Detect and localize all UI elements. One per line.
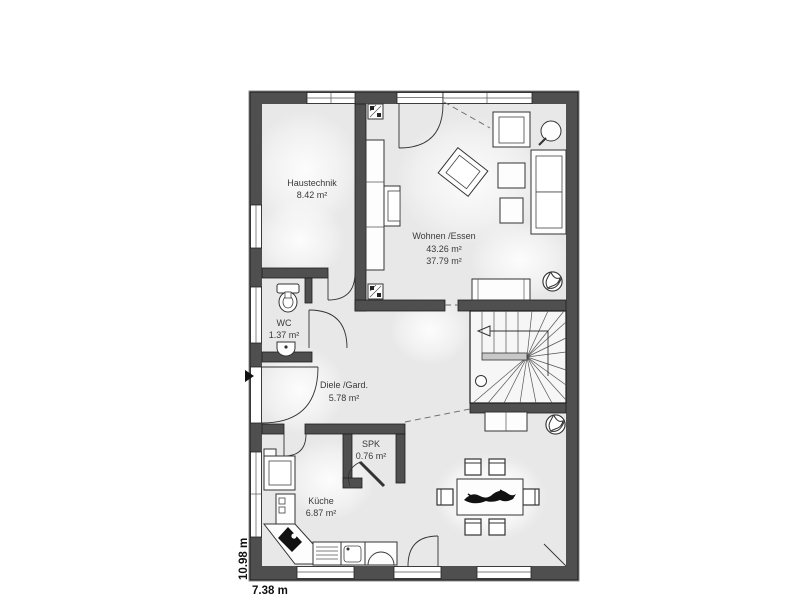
dining-chair <box>465 459 481 475</box>
window-bottom-essen <box>477 567 531 579</box>
side-table <box>500 198 523 223</box>
room-label-diele: Diele /Gard. <box>320 380 368 390</box>
room-area-haustechnik: 8.42 m² <box>297 190 328 200</box>
wall-haustechnik-bottom <box>262 268 328 278</box>
window-top-wohnen <box>443 93 532 104</box>
window-left-kueche <box>251 452 262 537</box>
dining-chair <box>489 519 505 535</box>
dimension-height: 10.98 m <box>238 538 250 580</box>
window-top-haustechnik <box>307 93 355 104</box>
door-opening-bottom-terrace <box>394 567 441 579</box>
tall-cabinet <box>276 494 295 524</box>
stair-newel-post <box>476 376 487 387</box>
kitchen-sink-icon <box>341 542 365 565</box>
room-area2-wohnen-essen: 37.79 m² <box>426 256 462 266</box>
electric-box-icon <box>368 104 383 119</box>
armchair <box>493 112 530 147</box>
wall-spk-left <box>343 434 352 483</box>
room-area-wc: 1.37 m² <box>269 330 300 340</box>
dimension-width: 7.38 m <box>252 585 288 597</box>
room-area-wohnen-essen: 43.26 m² <box>426 244 462 254</box>
window-left-wc <box>251 287 262 343</box>
wall-wohnen-south-left <box>355 300 445 311</box>
plant-icon <box>546 415 565 434</box>
coffee-table <box>498 163 525 188</box>
wall-spk-right <box>396 434 405 483</box>
wc-sink-icon <box>277 342 295 356</box>
staircase <box>470 311 566 403</box>
room-area-diele: 5.78 m² <box>329 393 360 403</box>
window-bottom-kueche <box>297 567 354 579</box>
sofa <box>531 150 566 234</box>
room-area-spk: 0.76 m² <box>356 451 387 461</box>
toilet-icon <box>277 284 299 312</box>
dining-chair <box>465 519 481 535</box>
essen-extras <box>485 412 565 434</box>
wall-stair-top <box>458 300 566 311</box>
lowboard <box>472 279 530 300</box>
wall-kueche-top-right <box>305 424 405 434</box>
bench <box>485 412 527 431</box>
room-label-kueche: Küche <box>308 496 334 506</box>
drawer-unit <box>313 542 341 565</box>
floor-plan-canvas: Haustechnik 8.42 m² Wohnen /Essen 43.26 … <box>0 0 800 600</box>
room-label-haustechnik: Haustechnik <box>287 178 337 188</box>
wall-haustechnik-partition <box>355 104 366 311</box>
electric-box-icon <box>368 284 383 299</box>
wall-kueche-top-left <box>262 424 284 434</box>
wall-wc-right <box>305 278 312 303</box>
room-label-spk: SPK <box>362 439 380 449</box>
room-area-kueche: 6.87 m² <box>306 508 337 518</box>
dining-chair <box>489 459 505 475</box>
window-left-haustechnik <box>251 205 262 248</box>
dining-chair <box>523 489 539 505</box>
room-label-wc: WC <box>277 318 292 328</box>
stair-landing-bar <box>482 353 527 360</box>
room-label-wohnen-essen: Wohnen /Essen <box>412 231 475 241</box>
cooktop-unit <box>365 542 397 565</box>
dining-chair <box>437 489 453 505</box>
door-opening-top-terrace <box>397 93 443 104</box>
floor-plan-drawing: Haustechnik 8.42 m² Wohnen /Essen 43.26 … <box>0 0 800 600</box>
wall-spk-bottom-stub <box>343 478 362 488</box>
plant-icon <box>543 272 562 291</box>
